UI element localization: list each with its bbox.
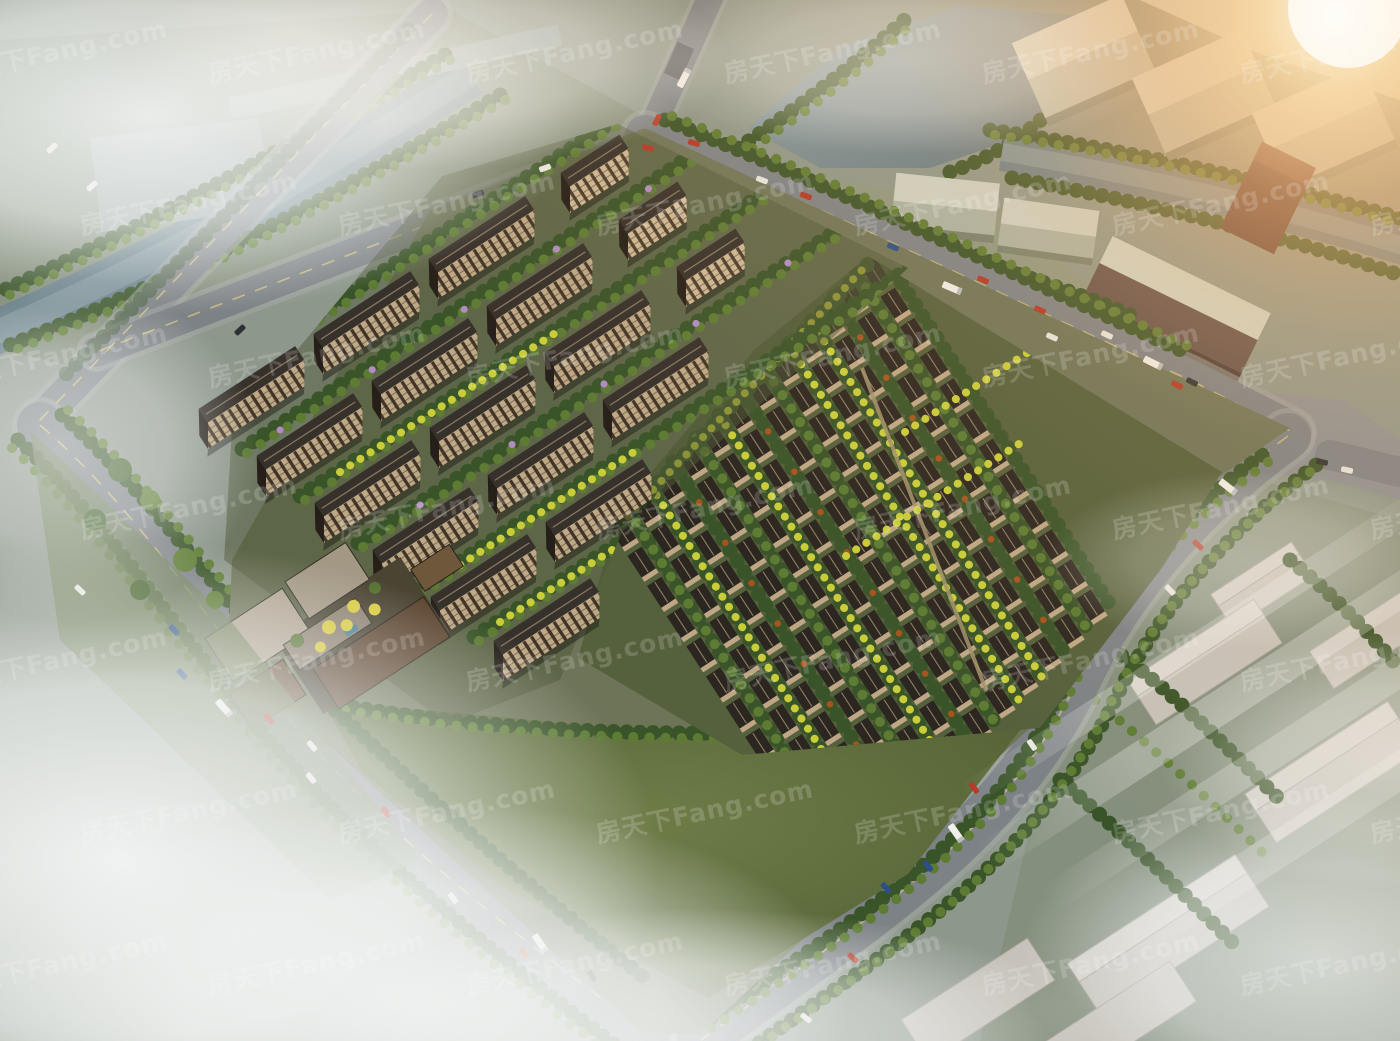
aerial-rendering: 房天下Fang.com房天下Fang.com房天下Fang.com房天下Fang… [0, 0, 1400, 1041]
sun-flare [0, 0, 1400, 1041]
scene-canvas [0, 0, 1400, 1041]
